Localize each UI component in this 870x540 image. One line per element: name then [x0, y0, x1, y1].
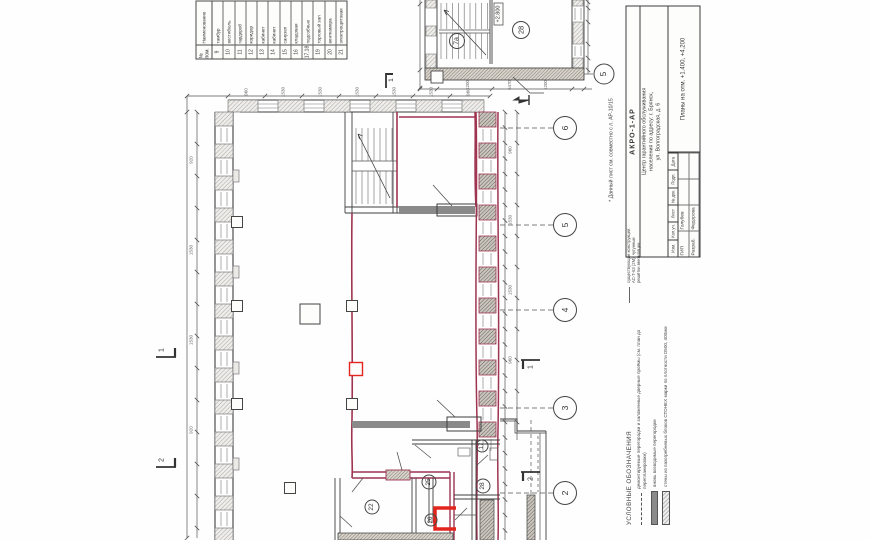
room-number-label: 28	[517, 26, 525, 34]
column	[347, 399, 358, 410]
room-name: электрощитовая	[336, 1, 346, 44]
room-no: 13	[257, 44, 267, 58]
bearing-wall	[338, 533, 453, 540]
object-line: Центр гарантийного обслуживания	[641, 87, 647, 175]
column	[232, 301, 243, 312]
bearing-wall	[425, 68, 584, 80]
wall-pier	[215, 400, 233, 414]
pilaster	[233, 170, 239, 182]
dim-number: 1200	[466, 80, 470, 90]
room-no: 14	[268, 44, 278, 58]
room-no: 19	[313, 44, 323, 58]
explication-row: 14кабинет	[268, 1, 279, 58]
dim-number: 1530	[190, 245, 195, 255]
sheet-note: * Данный лист см. совместно с л. АР-10/1…	[609, 98, 614, 201]
room-no: 21	[336, 44, 346, 58]
wall-pier	[479, 391, 496, 406]
room-no: 15	[280, 44, 290, 58]
fixture	[458, 448, 470, 456]
wall-pier	[479, 112, 496, 127]
wall-pier	[215, 368, 233, 382]
room-explication-table: № пом.Наименование9тамбур10вестибюль11га…	[195, 0, 347, 59]
legend-symbol-sym-blk	[662, 491, 670, 525]
wall-pier	[479, 360, 496, 375]
wall-pier	[215, 304, 233, 318]
dim-number: 920	[190, 156, 195, 164]
room-number-label: 22	[369, 503, 376, 510]
room-no: 20	[325, 44, 335, 58]
demolition-red-line	[352, 213, 353, 478]
room-name: тамбур	[212, 1, 222, 44]
legend-symbol-existing	[629, 287, 630, 303]
empty-cell	[689, 152, 699, 178]
column	[431, 71, 443, 83]
new-partition-bar	[352, 421, 470, 428]
wall-pier	[215, 176, 233, 190]
doc-code: АКРО-1-АР	[626, 6, 640, 256]
room-number-label: 28	[480, 482, 487, 489]
dim-number: 1200	[544, 80, 548, 90]
room-no: 16	[291, 44, 301, 58]
scanned-floor-plan-sheet: № пом.Наименование9тамбур10вестибюль11га…	[0, 0, 870, 540]
wall-pier	[215, 208, 233, 222]
empty-cell	[689, 178, 699, 204]
demolished-partition	[386, 470, 410, 480]
room-name: подсобные	[302, 1, 312, 44]
stamp-col-header: Подп.	[668, 169, 677, 186]
grid-axis-label: 3	[561, 406, 570, 411]
legend-symbol-sym-demol	[641, 493, 642, 525]
wall-pier	[324, 100, 350, 112]
legend-item: стены из пазогребневых блоков СТОНЕХ мар…	[662, 227, 670, 525]
room-name: санузел	[280, 1, 290, 44]
room-name: торговый зал	[313, 1, 323, 44]
column	[350, 363, 363, 376]
dim-number: 1530	[393, 87, 398, 97]
dim-number: 960	[509, 146, 514, 154]
wall-pier	[215, 112, 233, 126]
object-line: ул. Волгоградская, д. 6	[655, 102, 661, 160]
grid-axis-label: 6	[561, 126, 570, 131]
explication-row: 19торговый зал	[313, 1, 324, 58]
section-label: 2	[528, 477, 535, 481]
wall-pier	[416, 100, 442, 112]
room-name: гардероб	[235, 1, 245, 44]
column	[300, 304, 320, 324]
wall-pier	[215, 432, 233, 446]
empty-cell	[678, 178, 688, 204]
explication-row: 11гардероб	[235, 1, 246, 58]
dim-number: 1530	[430, 87, 435, 97]
room-no: 9	[212, 44, 222, 58]
stamp-col-header: Дата	[668, 152, 677, 169]
explication-row: 16кладовая	[291, 1, 302, 58]
wall-pier	[479, 205, 496, 220]
wall-pier	[370, 100, 396, 112]
wall-pier	[527, 495, 535, 540]
legend-symbol-sym-new	[651, 491, 658, 525]
room-no: 12	[246, 44, 256, 58]
explication-row: 21электрощитовая	[336, 1, 346, 58]
symbols-legend: УСЛОВНЫЕ ОБОЗНАЧЕНИЯдемонтируемые перего…	[626, 227, 700, 525]
wall-pier	[479, 422, 496, 437]
room-name: кабинет	[257, 1, 267, 44]
plan-linework	[0, 0, 870, 540]
wall-pier	[479, 298, 496, 313]
wall-pier	[480, 500, 494, 540]
room-number-label: 17	[479, 443, 485, 450]
dim-number: 5470	[508, 80, 512, 90]
explication-row: 15санузел	[280, 1, 291, 58]
column	[232, 217, 243, 228]
legend-text: стены из пазогребневых блоков СТОНЕХ мар…	[663, 317, 669, 487]
wall-pier	[215, 336, 233, 350]
explication-row: 12коридор	[246, 1, 257, 58]
elevation-label: +2.800	[496, 6, 502, 23]
room-name: коридор	[246, 1, 256, 44]
door-leaf	[415, 445, 431, 458]
room-number-label: 25	[426, 478, 433, 485]
column	[285, 483, 296, 494]
wall-pier	[479, 267, 496, 282]
wall-pier	[479, 236, 496, 251]
wall-pier	[215, 272, 233, 286]
wall-pier	[215, 240, 233, 254]
dim-number: 1530	[282, 87, 287, 97]
grid-axis-label: 5	[561, 223, 570, 228]
wall-pier	[215, 528, 233, 540]
legend-item: вновь возводимые перегородки	[651, 227, 658, 525]
object-name: Центр гарантийного обслуживаниянаселения…	[640, 6, 668, 256]
grid-axis-label: 5	[600, 72, 608, 76]
explication-col-no: № пом.	[196, 44, 211, 58]
column	[347, 301, 358, 312]
room-name: вестибюль	[223, 1, 233, 44]
room-number-label: 7а	[454, 37, 461, 45]
grid-axis-label: 4	[561, 308, 570, 313]
explication-col-name: Наименование	[196, 1, 211, 44]
wall-pier	[479, 143, 496, 158]
dim-number: 960	[245, 88, 250, 96]
stamp-col-header: Лист	[668, 204, 677, 221]
section-label: 1	[159, 348, 166, 352]
pilaster	[233, 458, 239, 470]
dim-number: 920	[190, 426, 195, 434]
wall-pier	[215, 144, 233, 158]
pilaster	[233, 362, 239, 374]
section-label: 2	[159, 458, 166, 462]
column	[232, 399, 243, 410]
legend-item: существующие конструкции: АС-Т-63 (2М), …	[626, 227, 641, 303]
object-line: населения по адресу: г. Брянск,	[648, 91, 654, 170]
wall-pier	[479, 174, 496, 189]
room-no: 17,18	[302, 44, 312, 58]
dim-number: 1530	[356, 87, 361, 97]
room-name: кабинет	[268, 1, 278, 44]
legend-text: существующие конструкции: АС-Т-63 (2М), …	[626, 227, 641, 283]
title-block-stamp: АКРО-1-АРЦентр гарантийного обслуживания…	[625, 5, 700, 257]
stamp-col-header: № док.	[668, 187, 677, 204]
legend-text: вновь возводимые перегородки	[652, 317, 658, 487]
room-name: кладовая	[291, 1, 301, 44]
demolition-red-line	[498, 112, 499, 540]
dim-number: 1530	[190, 335, 195, 345]
room-no: 10	[223, 44, 233, 58]
door-leaf	[352, 478, 363, 492]
grid-axis-label: 2	[561, 491, 570, 496]
door-leaf	[340, 516, 352, 527]
explication-row: 10вестибюль	[223, 1, 234, 58]
pilaster	[233, 266, 239, 278]
room-name: венткамера	[325, 1, 335, 44]
legend-text: демонтируемые перегородки и заложенные д…	[636, 319, 647, 489]
empty-cell	[678, 152, 688, 178]
explication-row: 9тамбур	[212, 1, 223, 58]
dim-number: 1530	[509, 285, 514, 295]
door-leaf	[455, 508, 467, 520]
wall-pier	[215, 496, 233, 510]
wall-pier	[215, 464, 233, 478]
wall-pier	[278, 100, 304, 112]
explication-row: 20венткамера	[325, 1, 336, 58]
stair-arrow	[444, 10, 486, 55]
wall-pier	[462, 100, 484, 112]
new-opening-red	[435, 508, 456, 529]
wall-pier	[228, 100, 258, 112]
dim-number: 1530	[509, 215, 514, 225]
room-number-label: 26	[428, 517, 434, 524]
dim-number: 960	[509, 356, 514, 364]
dim-number: 1530	[319, 87, 324, 97]
sheet-title: Планы на отм. +1.400, +4.200	[668, 6, 699, 151]
explication-row: 13кабинет	[257, 1, 268, 58]
section-label: 1	[389, 78, 396, 82]
explication-row: 17,18подсобные	[302, 1, 313, 58]
wall-pier	[479, 329, 496, 344]
section-label: 1	[528, 365, 535, 369]
room-no: 11	[235, 44, 245, 58]
